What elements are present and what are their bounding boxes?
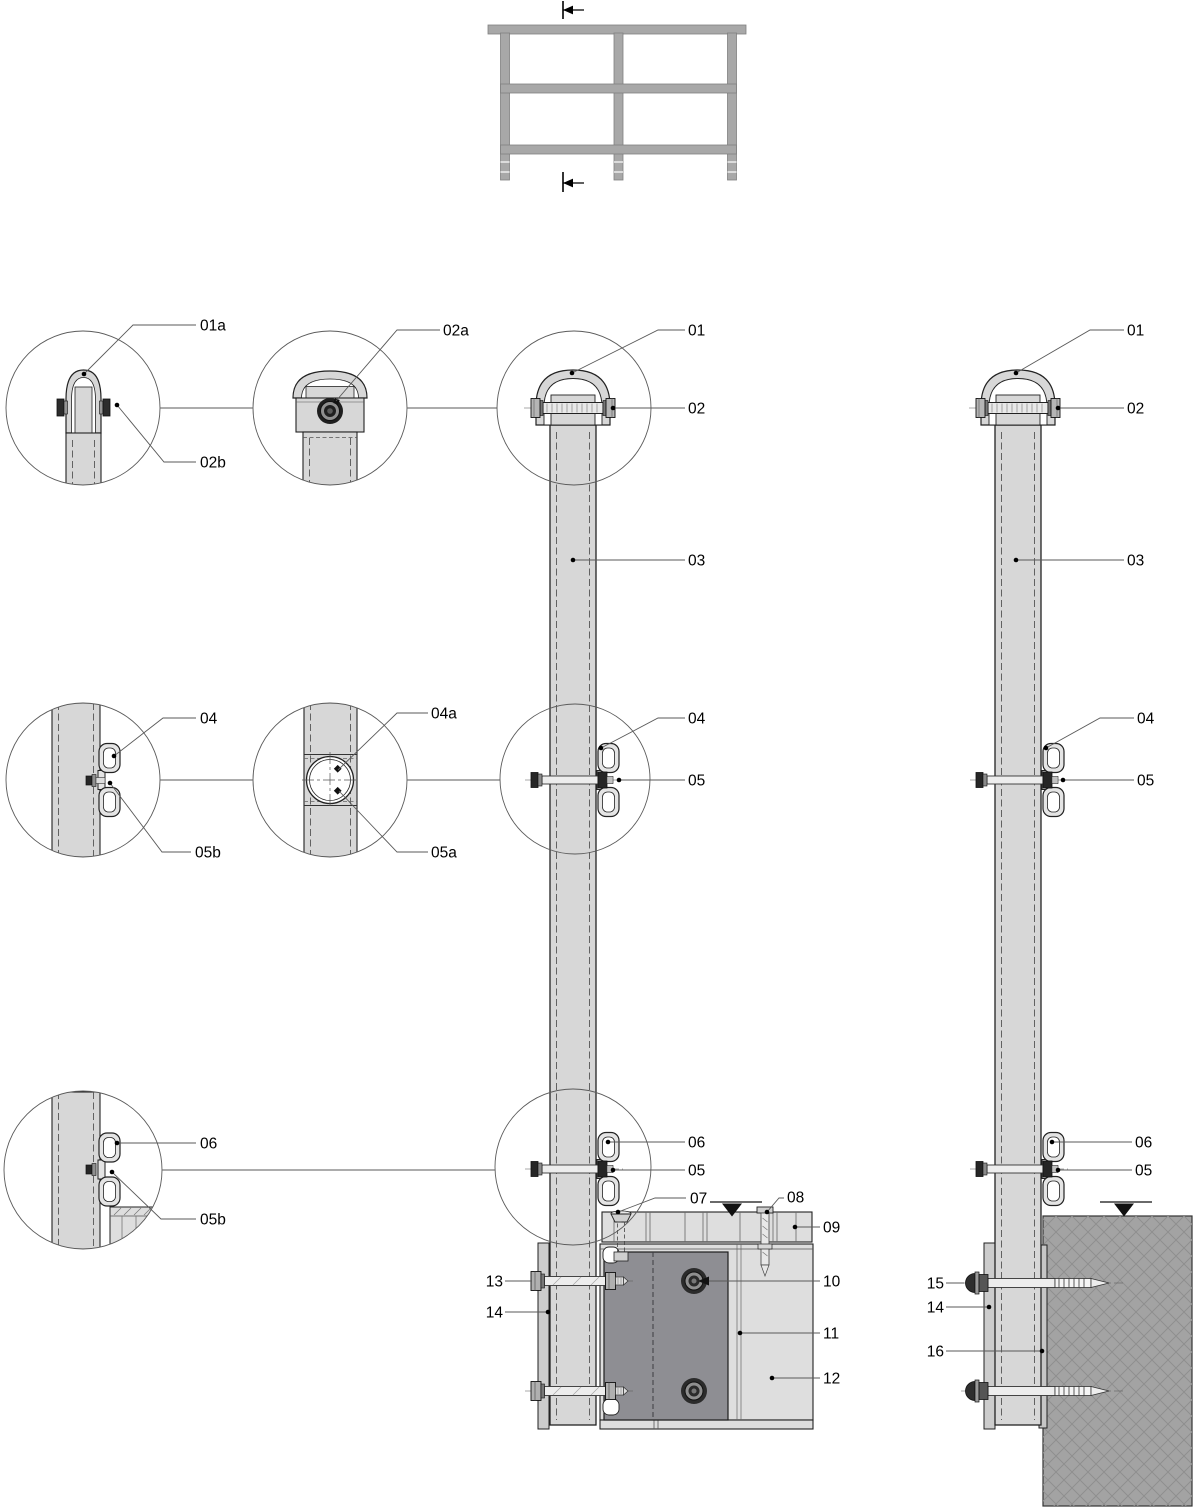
washer bbox=[64, 401, 68, 414]
section-cut-marker-bottom bbox=[563, 172, 584, 192]
callout-08: 08 bbox=[787, 1190, 804, 1207]
washer bbox=[100, 401, 104, 414]
callout-12: 12 bbox=[823, 1371, 840, 1388]
bolt-head bbox=[86, 776, 92, 785]
callout-02: 02 bbox=[688, 401, 705, 418]
mid-rail bbox=[501, 84, 737, 93]
callout-02b: 02b bbox=[200, 455, 226, 472]
plate-bolt bbox=[681, 1378, 707, 1404]
detail-post-top-front: 02a bbox=[253, 323, 469, 489]
callout-06: 06 bbox=[688, 1135, 705, 1152]
railing-detail-drawing: 01a 02b 02a 04 05b bbox=[0, 0, 1200, 1511]
callout-10: 10 bbox=[823, 1274, 841, 1291]
callout-05a: 05a bbox=[431, 845, 457, 862]
washer bbox=[92, 775, 96, 787]
callout-05b: 05b bbox=[195, 845, 221, 862]
callout-09: 09 bbox=[823, 1220, 840, 1237]
flat-bar bbox=[984, 1243, 995, 1429]
detail-mid-rail-side: 04 05b bbox=[6, 703, 221, 862]
callout-01: 01 bbox=[688, 323, 705, 340]
datum-level-symbol bbox=[1100, 1202, 1152, 1217]
elevation-post bbox=[728, 33, 737, 180]
bolt-stub bbox=[96, 778, 105, 784]
callout-13: 13 bbox=[486, 1274, 503, 1291]
mid-rail bbox=[501, 145, 737, 154]
concrete-hatch bbox=[1043, 1216, 1192, 1506]
callout-05: 05 bbox=[688, 773, 705, 790]
center-post-section bbox=[495, 331, 813, 1429]
callout-06: 06 bbox=[1135, 1135, 1152, 1152]
callout-01a: 01a bbox=[200, 318, 226, 335]
callout-04a: 04a bbox=[431, 706, 457, 723]
bolt-head bbox=[86, 1165, 92, 1174]
section-cut-marker-top bbox=[563, 1, 584, 19]
right-post-section bbox=[961, 370, 1192, 1506]
callout-05: 05 bbox=[688, 1163, 705, 1180]
callout-03: 03 bbox=[1127, 553, 1144, 570]
callout-15: 15 bbox=[927, 1276, 944, 1293]
elevation-view bbox=[488, 1, 746, 192]
callout-04: 04 bbox=[200, 711, 218, 728]
callout-02: 02 bbox=[1127, 401, 1144, 418]
callout-01: 01 bbox=[1127, 323, 1144, 340]
flat-bar bbox=[538, 1243, 549, 1429]
callout-16: 16 bbox=[927, 1344, 944, 1361]
callout-14: 14 bbox=[927, 1300, 945, 1317]
callout-05: 05 bbox=[1137, 773, 1154, 790]
callout-14: 14 bbox=[486, 1305, 504, 1322]
callout-03: 03 bbox=[688, 553, 705, 570]
technical-drawing-page: 01a 02b 02a 04 05b bbox=[0, 0, 1200, 1511]
post-body bbox=[66, 433, 101, 488]
joist-bottom-flange bbox=[600, 1420, 813, 1429]
elevation-post bbox=[614, 33, 623, 180]
channel-lip-bottom bbox=[603, 1399, 619, 1415]
post-body bbox=[303, 432, 357, 488]
bolt-nut bbox=[57, 399, 64, 416]
bolt-nut bbox=[103, 399, 110, 416]
callout-11: 11 bbox=[823, 1326, 839, 1343]
callout-05b: 05b bbox=[200, 1212, 226, 1229]
callout-02a: 02a bbox=[443, 323, 469, 340]
callout-04: 04 bbox=[688, 711, 706, 728]
callout-05: 05 bbox=[1135, 1163, 1152, 1180]
callout-04: 04 bbox=[1137, 711, 1155, 728]
callout-07: 07 bbox=[690, 1191, 707, 1208]
detail-mid-rail-front: 04a 05a bbox=[253, 703, 457, 862]
callout-06: 06 bbox=[200, 1136, 217, 1153]
washer bbox=[92, 1164, 96, 1176]
elevation-post bbox=[501, 33, 510, 180]
detail-post-top-side: 01a 02b bbox=[6, 318, 226, 489]
